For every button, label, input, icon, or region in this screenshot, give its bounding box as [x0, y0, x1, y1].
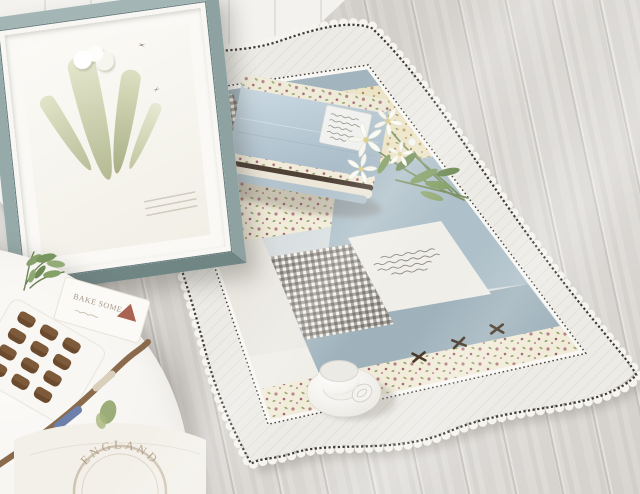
photo-scene: BAKE SOME	[0, 0, 640, 494]
flower-bud	[408, 138, 416, 146]
print-flower	[68, 41, 115, 77]
branch-cream-wrap	[96, 374, 112, 388]
potted-greenery	[24, 252, 65, 290]
butterfly-icon	[152, 85, 161, 93]
frame-mat	[5, 8, 226, 274]
butterfly-icon	[138, 42, 146, 48]
print-script-text	[144, 191, 198, 219]
botanical-print	[20, 24, 211, 259]
cup-opening	[320, 361, 358, 382]
table-items: BAKE SOME	[0, 240, 220, 494]
